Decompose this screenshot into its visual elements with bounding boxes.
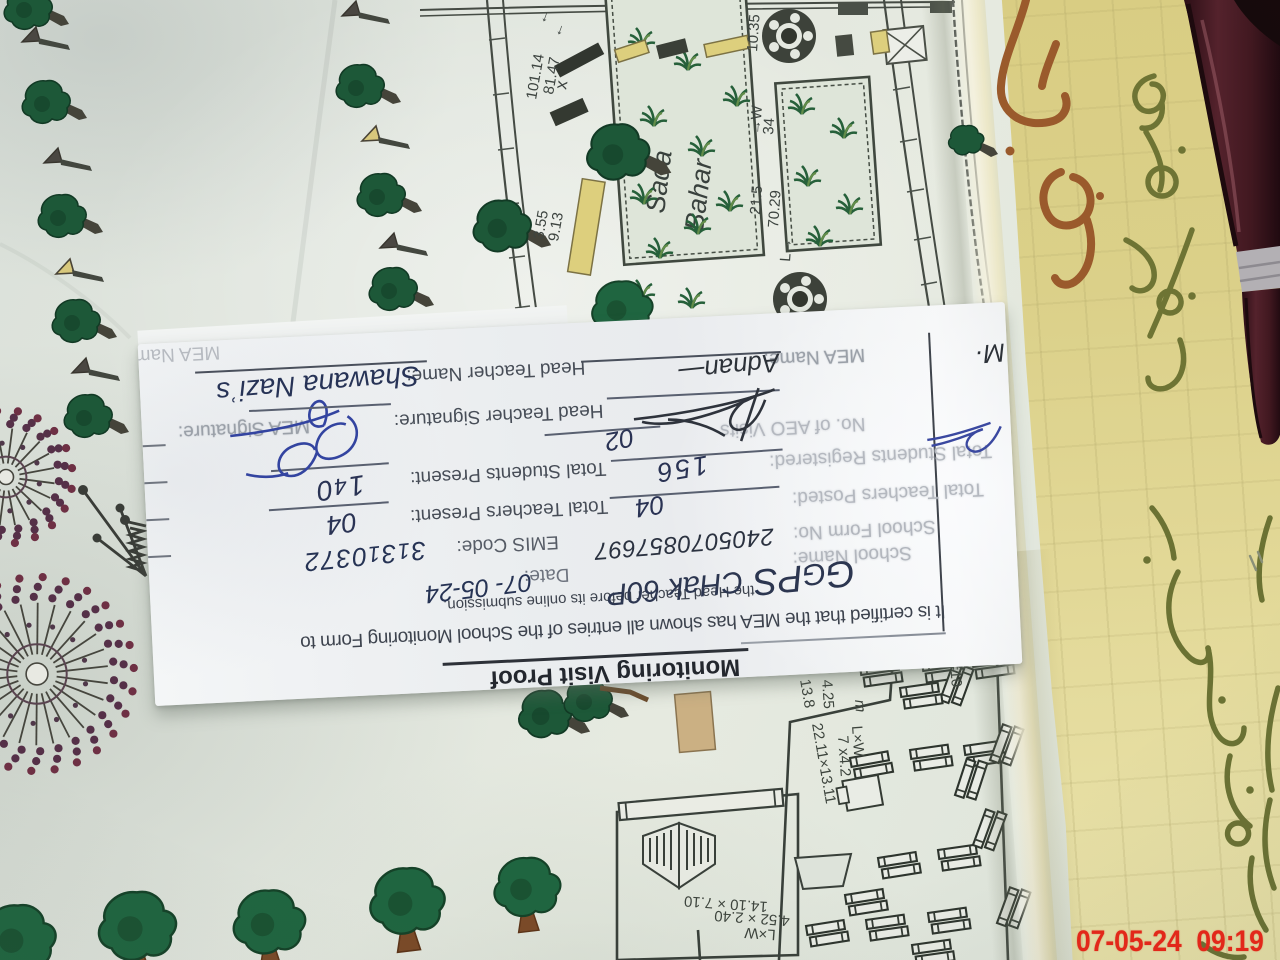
- svg-text:22.11×13.11: 22.11×13.11: [808, 722, 839, 805]
- svg-text:𝑚: 𝑚: [851, 699, 869, 712]
- svg-text:9.13: 9.13: [545, 211, 567, 243]
- svg-text:21.5: 21.5: [747, 185, 766, 215]
- svg-text:L×W: L×W: [848, 725, 867, 758]
- svg-text:70.29: 70.29: [765, 190, 785, 229]
- svg-text:4.25: 4.25: [818, 679, 837, 709]
- svg-text:←: ←: [548, 19, 569, 39]
- svg-text:L→: L→: [777, 238, 796, 262]
- svg-text:→W: →W: [747, 104, 766, 135]
- svg-text:10.35: 10.35: [744, 14, 764, 53]
- svg-text:13.8: 13.8: [796, 678, 818, 710]
- svg-text:L×W: L×W: [743, 924, 776, 943]
